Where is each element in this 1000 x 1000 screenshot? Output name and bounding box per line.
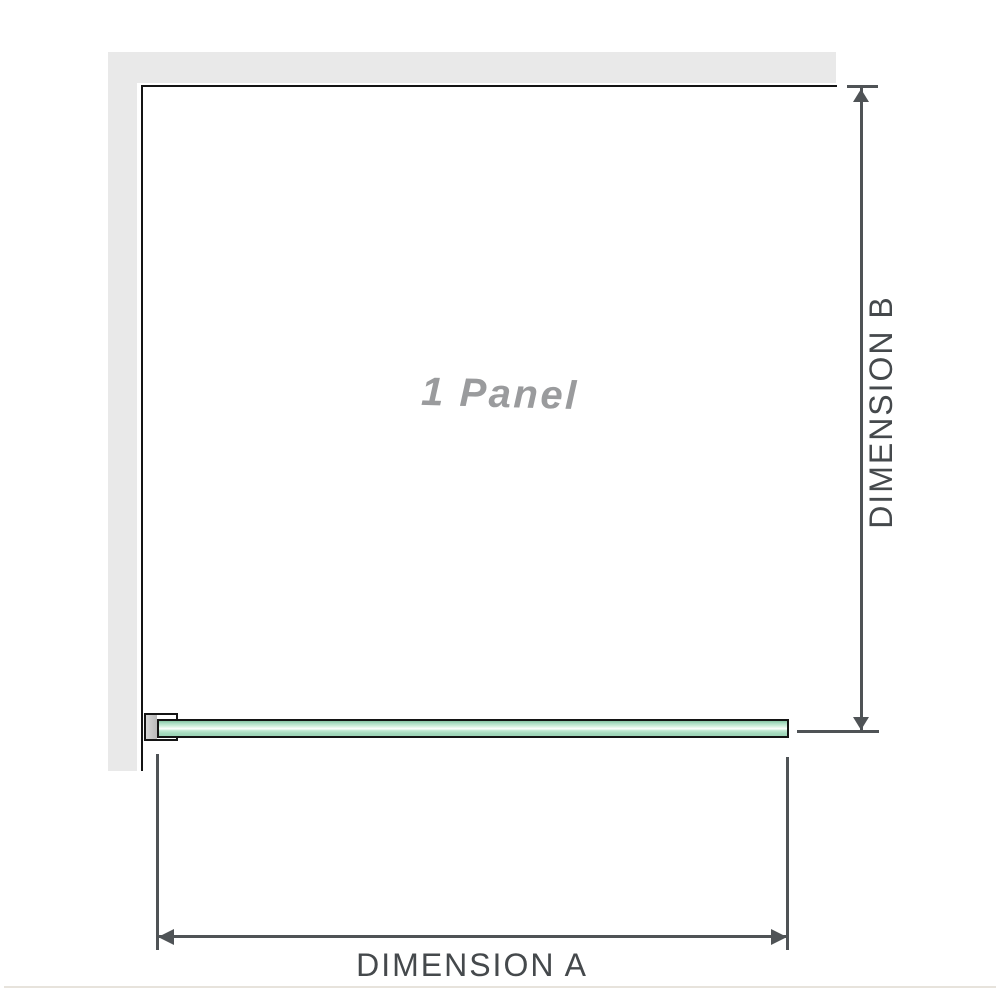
dimension-a-label: DIMENSION A <box>322 946 622 984</box>
dimension-a-line <box>159 935 786 938</box>
panel-left-edge <box>141 85 144 771</box>
dimension-b-bottom-tick <box>797 730 879 733</box>
dimension-a-right-extension <box>786 757 789 950</box>
bracket-fill <box>146 715 157 739</box>
bottom-divider <box>4 986 996 988</box>
dimension-b-label: DIMENSION B <box>863 252 899 572</box>
panel-count-label: 1 Panel <box>349 365 650 423</box>
dimension-a-left-extension <box>156 754 159 950</box>
glass-panel <box>157 719 789 738</box>
panel-top-edge <box>141 85 837 88</box>
panel-dimension-diagram: 1 Panel DIMENSION B DIMENSION A <box>0 0 1000 1000</box>
wall-top <box>108 52 836 83</box>
arrow-right-icon <box>771 929 787 945</box>
arrow-up-icon <box>853 89 869 102</box>
arrow-left-icon <box>158 929 174 945</box>
arrow-down-icon <box>853 717 869 730</box>
wall-left <box>108 52 137 771</box>
